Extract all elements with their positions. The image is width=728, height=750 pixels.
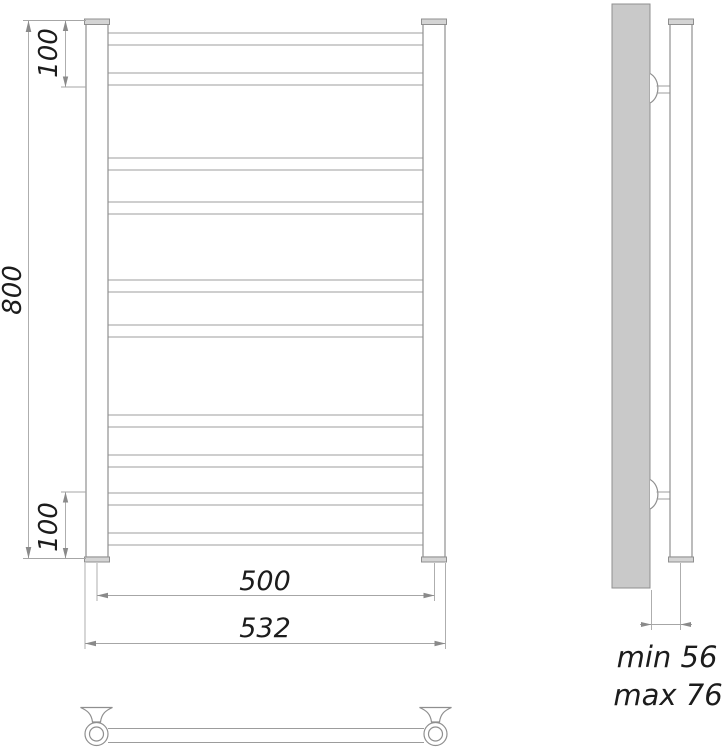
- rung: [108, 493, 423, 505]
- top-offset-label: 100: [34, 28, 64, 78]
- rung: [108, 325, 423, 337]
- left-post-top-cap: [85, 19, 110, 25]
- wall: [612, 4, 650, 588]
- side-post-bottom-cap: [669, 557, 694, 562]
- arrow-up-icon: [63, 492, 68, 503]
- depth-min-label: min 56: [617, 640, 718, 674]
- drawing-canvas: 800 100 100 500 532: [0, 0, 728, 750]
- right-post-top-cap: [422, 19, 447, 25]
- left-flange: [81, 708, 113, 723]
- rungs: [108, 33, 423, 545]
- depth-max-label: max 76: [613, 678, 722, 712]
- left-mount: [81, 708, 113, 746]
- rung: [108, 533, 423, 545]
- arrow-left-icon: [97, 593, 108, 598]
- arrow-up-icon: [26, 21, 32, 33]
- arrow-down-icon: [26, 547, 32, 559]
- upper-bracket: [650, 74, 670, 104]
- bracket-dome: [650, 74, 658, 104]
- arrow-right-icon: [424, 593, 435, 598]
- right-post-section-inner: [429, 727, 443, 741]
- side-post: [670, 24, 692, 557]
- dimensions-front: 800 100 100 500 532: [0, 21, 446, 650]
- inner-width-label: 500: [239, 566, 291, 597]
- left-post-bottom-cap: [85, 557, 110, 562]
- right-post: [423, 24, 445, 557]
- towel-rail-drawing: 800 100 100 500 532: [0, 0, 728, 750]
- rung: [108, 415, 423, 427]
- left-post: [86, 24, 108, 557]
- top-view: [81, 708, 452, 746]
- rung: [108, 202, 423, 214]
- arrow-left-icon: [681, 622, 692, 627]
- left-post-section-inner: [90, 727, 104, 741]
- right-post-bottom-cap: [422, 557, 447, 562]
- rung: [108, 280, 423, 292]
- front-view: [85, 19, 447, 562]
- arrow-right-icon: [641, 622, 652, 627]
- side-post-top-cap: [669, 19, 694, 25]
- side-view: min 56 max 76: [612, 4, 723, 712]
- lower-bracket: [650, 480, 670, 510]
- arrow-left-icon: [85, 641, 96, 646]
- bracket-stem: [657, 492, 671, 499]
- arrow-right-icon: [435, 641, 446, 646]
- rung: [108, 33, 423, 45]
- rung: [108, 158, 423, 170]
- right-flange: [420, 708, 452, 723]
- height-label: 800: [0, 265, 28, 315]
- outer-width-label: 532: [239, 613, 291, 644]
- rung: [108, 455, 423, 467]
- bracket-dome: [650, 480, 658, 510]
- right-mount: [420, 708, 452, 746]
- bracket-stem: [657, 86, 671, 93]
- bottom-offset-label: 100: [34, 502, 64, 552]
- rung: [108, 73, 423, 85]
- crossbar-tube: [108, 729, 424, 743]
